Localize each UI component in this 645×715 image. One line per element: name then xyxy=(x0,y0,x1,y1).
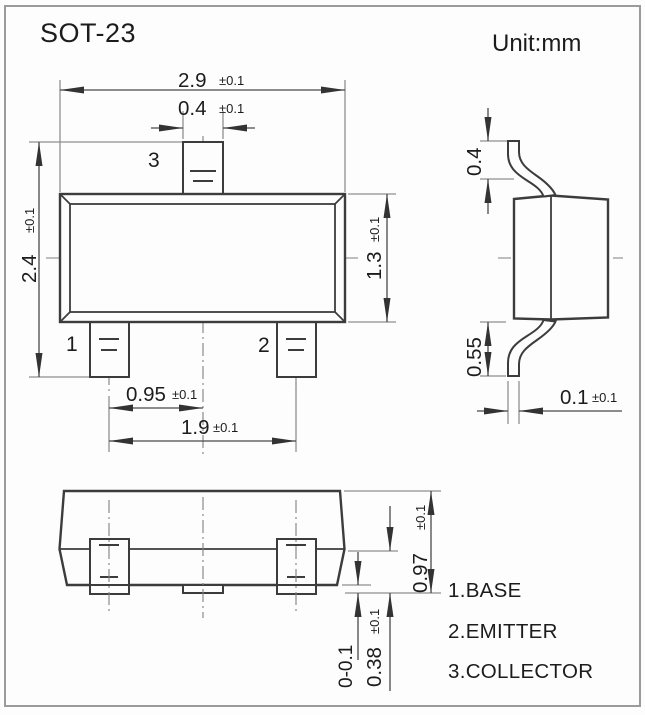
legend-base: 1.BASE xyxy=(448,579,522,602)
dim-body-width-tol: ±0.1 xyxy=(219,73,244,88)
dim-overall-height-tol: ±0.1 xyxy=(22,208,37,233)
dim-pin-pitch-tol: ±0.1 xyxy=(172,387,197,402)
drawing-canvas: SOT-23 Unit:mm 3 1 2 xyxy=(0,0,645,715)
front-view xyxy=(60,491,345,618)
dim-lead-thickness: 0.1 ±0.1 xyxy=(477,381,622,424)
dim-lead-front-height-tol: ±0.1 xyxy=(367,609,382,634)
dim-front-height-tol: ±0.1 xyxy=(413,505,428,530)
body-outline xyxy=(60,194,345,322)
pin1-label: 1 xyxy=(66,333,78,356)
sot23-outline-drawing: SOT-23 Unit:mm 3 1 2 xyxy=(0,0,645,715)
dim-standoff-value: 0-0.1 xyxy=(336,645,357,688)
dim-lead-top-length-value: 0.4 xyxy=(463,148,486,177)
pin2-label: 2 xyxy=(258,334,270,357)
dim-body-width-value: 2.9 xyxy=(178,69,207,92)
side-body xyxy=(514,196,608,320)
side-view xyxy=(498,141,623,376)
pin-3 xyxy=(183,142,223,194)
dim-body-height-tol: ±0.1 xyxy=(367,217,382,242)
side-lead-top xyxy=(508,141,556,197)
side-lead-bottom xyxy=(508,320,556,376)
dim-front-height-value: 0.97 xyxy=(409,553,432,593)
dim-lead-front-height-value: 0.38 xyxy=(363,647,386,687)
page-title: SOT-23 xyxy=(40,18,136,48)
dim-lead-bottom-length: 0.55 xyxy=(463,322,506,377)
dim-overall-height-value: 2.4 xyxy=(18,255,41,284)
pin-legend: 1.BASE 2.EMITTER 3.COLLECTOR xyxy=(448,579,593,683)
dim-lead-thickness-value: 0.1 xyxy=(560,386,589,409)
dim-lead-thickness-tol: ±0.1 xyxy=(592,390,617,405)
legend-collector: 3.COLLECTOR xyxy=(448,660,593,683)
legend-emitter: 2.EMITTER xyxy=(448,620,558,643)
dim-pin-width-value: 0.4 xyxy=(178,97,207,120)
dim-pin-width: 0.4 ±0.1 xyxy=(151,97,255,139)
pin3-label: 3 xyxy=(148,149,160,172)
dim-pin-span-value: 1.9 xyxy=(181,416,210,439)
dim-lead-bottom-length-value: 0.55 xyxy=(463,337,486,377)
unit-label: Unit:mm xyxy=(492,30,581,57)
top-view: 3 1 2 xyxy=(46,136,360,455)
dim-pin-span-tol: ±0.1 xyxy=(213,420,238,435)
dim-pin-pitch-value: 0.95 xyxy=(126,383,166,406)
dim-lead-top-length: 0.4 xyxy=(463,108,514,214)
dim-body-height-value: 1.3 xyxy=(363,252,386,281)
dim-pin-width-tol: ±0.1 xyxy=(219,101,244,116)
